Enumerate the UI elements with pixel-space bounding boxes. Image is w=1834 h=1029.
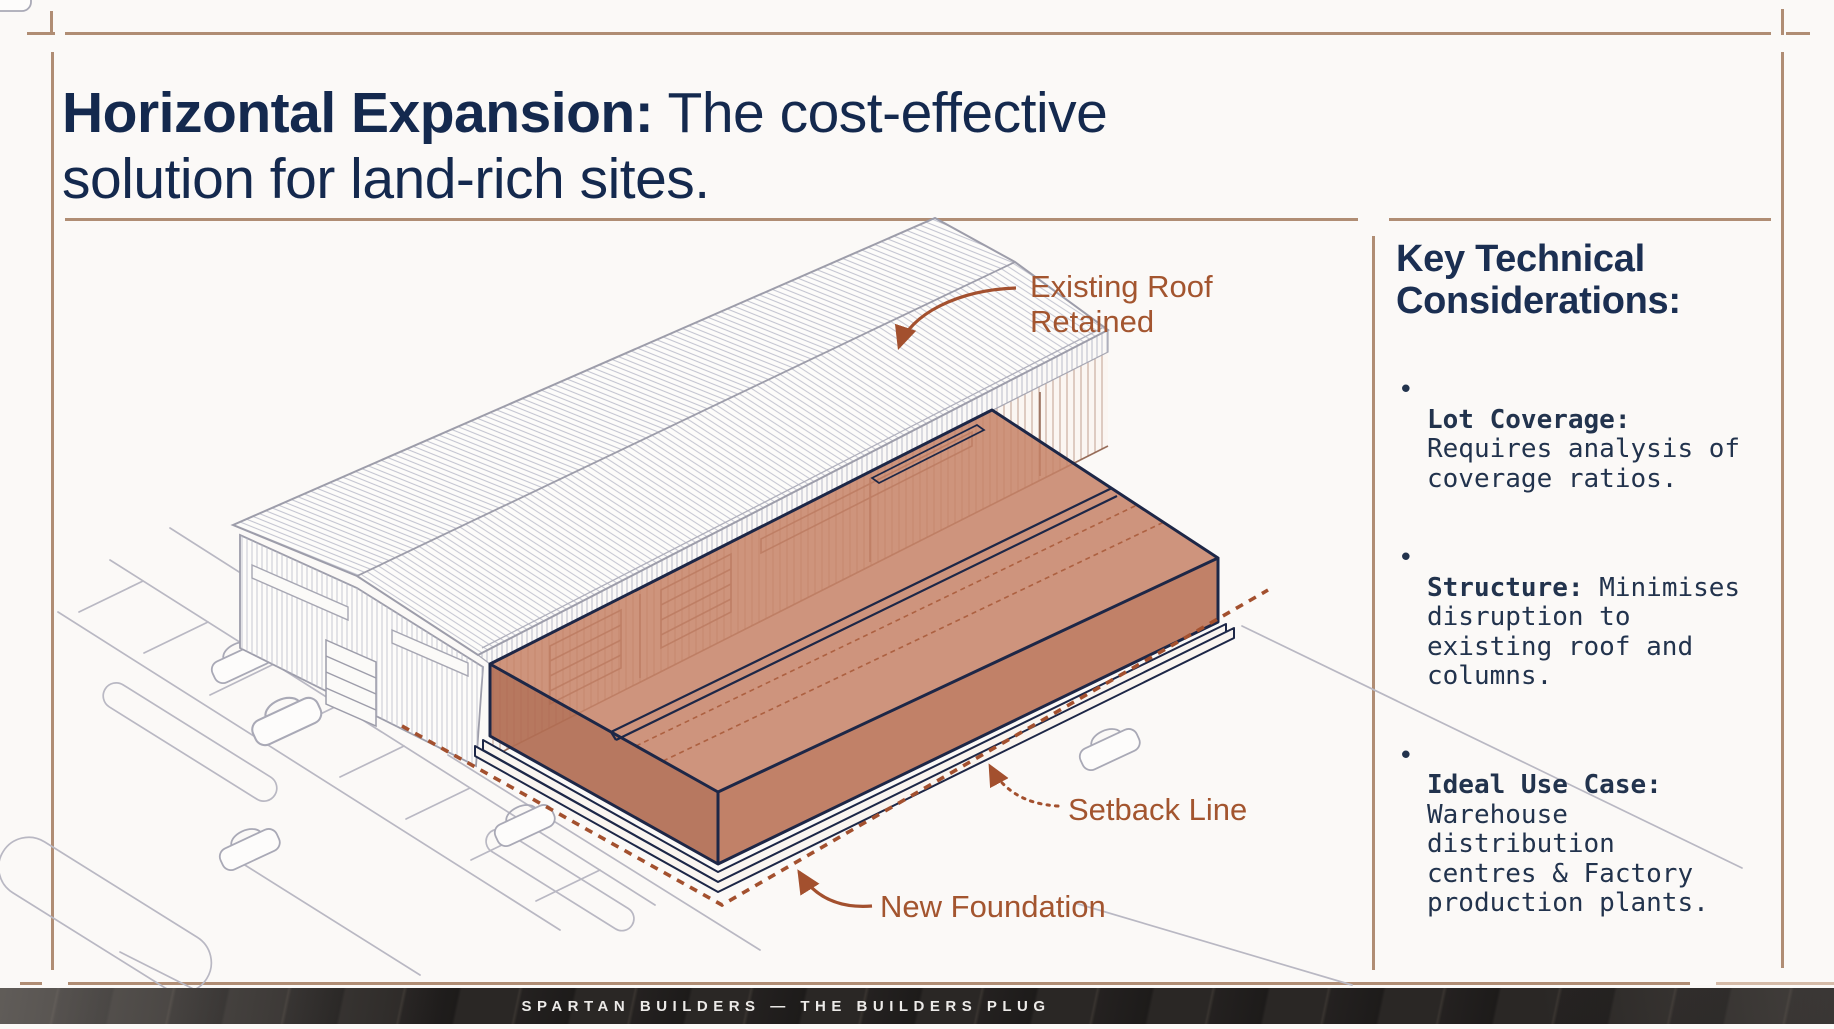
- bullet-dot: •: [1398, 376, 1414, 406]
- bullet-dot: •: [1398, 742, 1414, 772]
- annotation-setback: Setback Line: [990, 766, 1247, 827]
- bullet-lot-coverage: •Lot Coverage: Requires analysis of cove…: [1396, 376, 1774, 494]
- bullet-ideal-use-case: •Ideal Use Case: Warehouse distribution …: [1396, 742, 1774, 919]
- footer-band: SPARTAN BUILDERS — THE BUILDERS PLUG: [0, 988, 1834, 1024]
- existing-roof-label-line1: Existing Roof: [1030, 269, 1213, 304]
- bullet-lead: Lot Coverage:: [1427, 405, 1631, 435]
- foundation-label: New Foundation: [880, 889, 1106, 924]
- bullet-structure: •Structure: Minimises disruption to exis…: [1396, 544, 1774, 692]
- bullet-text: Warehouse distribution centres & Factory…: [1427, 800, 1709, 919]
- key-considerations-panel: Key Technical Considerations: •Lot Cover…: [1396, 238, 1774, 969]
- existing-roof-label-line2: Retained: [1030, 304, 1154, 339]
- annotation-foundation: New Foundation: [799, 872, 1106, 924]
- bullet-text: Requires analysis of coverage ratios.: [1427, 434, 1740, 494]
- footer-brand-text: SPARTAN BUILDERS — THE BUILDERS PLUG: [521, 998, 1312, 1015]
- panel-heading: Key Technical Considerations:: [1396, 238, 1774, 322]
- bullet-lead: Structure:: [1427, 573, 1584, 603]
- panel-bullet-list: •Lot Coverage: Requires analysis of cove…: [1396, 376, 1774, 919]
- bullet-dot: •: [1398, 544, 1414, 574]
- setback-label: Setback Line: [1068, 792, 1247, 827]
- bullet-lead: Ideal Use Case:: [1427, 770, 1662, 800]
